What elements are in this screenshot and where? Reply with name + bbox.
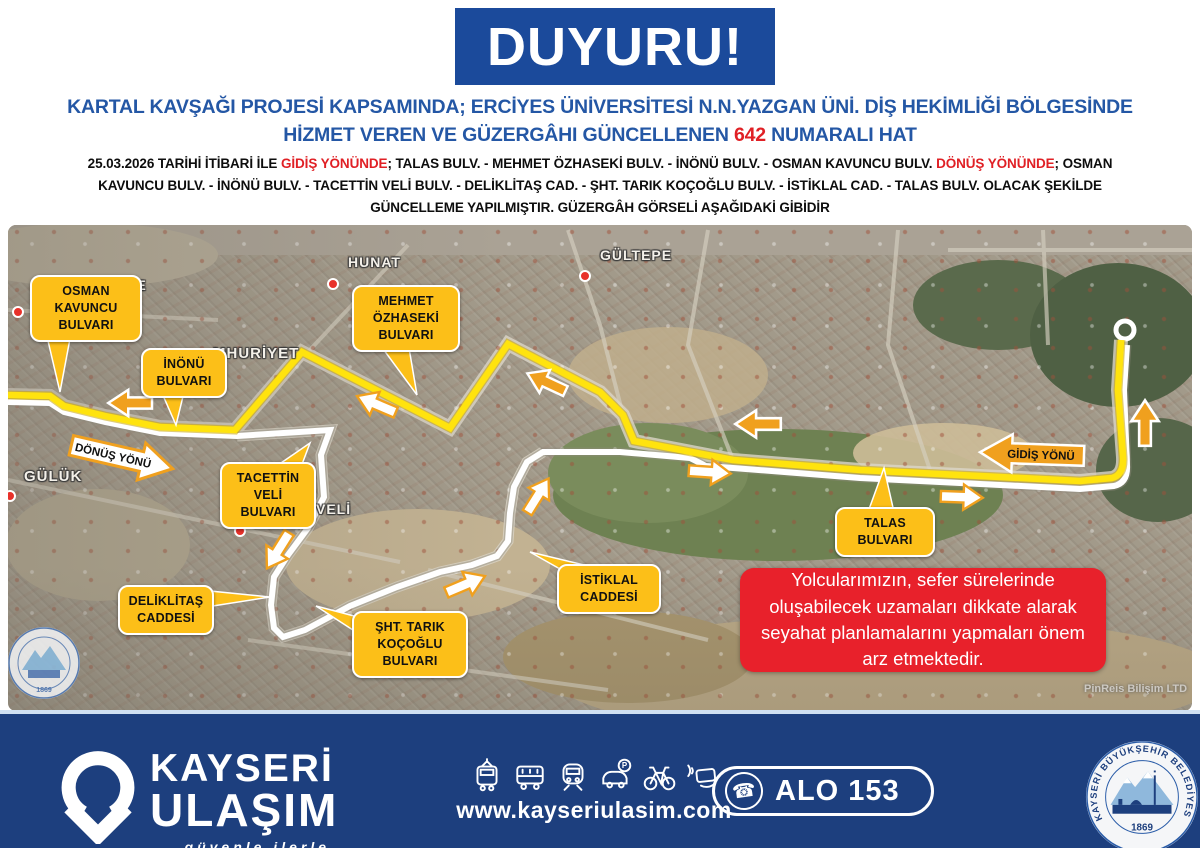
route-description: 25.03.2026 TARİHİ İTİBARİ İLE GİDİŞ YÖNÜ… bbox=[60, 153, 1140, 219]
announcement-poster: DUYURU! KARTAL KAVŞAĞI PROJESİ KAPSAMIND… bbox=[0, 0, 1200, 848]
passenger-advisory: Yolcularımızın, sefer sürelerinde oluşab… bbox=[740, 568, 1106, 672]
kayseri-ulasim-pin-logo bbox=[50, 744, 146, 844]
callout-osman-kavuncu: OSMAN KAVUNCU BULVARI bbox=[30, 275, 142, 342]
callout-inonu: İNÖNÜ BULVARI bbox=[141, 348, 227, 398]
footer-middle: P www.kayseriulasim.com bbox=[438, 758, 750, 824]
headline: KARTAL KAVŞAĞI PROJESİ KAPSAMINDA; ERCİY… bbox=[0, 94, 1200, 149]
banner-title: DUYURU! bbox=[487, 16, 743, 78]
headline-text: KARTAL KAVŞAĞI PROJESİ KAPSAMINDA; ERCİY… bbox=[65, 94, 1135, 149]
bus-icon bbox=[512, 758, 548, 792]
direction-outbound-text: GİDİŞ YÖNÜNDE bbox=[281, 156, 387, 171]
place-label: GÜLÜK bbox=[24, 468, 82, 485]
municipality-seal: KAYSERİ BÜYÜKŞEHİR BELEDİYESİ 1869 bbox=[1083, 738, 1200, 848]
brand-line1: KAYSERİ bbox=[150, 750, 330, 787]
phone-handset-icon: ☎ bbox=[723, 770, 766, 813]
svg-text:P: P bbox=[621, 761, 627, 770]
route-map: DÖNÜŞ YÖNÜ GİDİŞ YÖNÜ bbox=[8, 225, 1192, 711]
transport-icons: P bbox=[438, 758, 750, 792]
callout-deliklitas: DELİKLİTAŞ CADDESİ bbox=[118, 585, 214, 635]
callout-talas: TALAS BULVARI bbox=[835, 507, 935, 557]
call-center-badge: ☎ ALO 153 bbox=[712, 766, 934, 816]
website-url: www.kayseriulasim.com bbox=[438, 797, 750, 824]
direction-return-text: DÖNÜŞ YÖNÜNDE bbox=[936, 156, 1054, 171]
svg-text:1869: 1869 bbox=[1131, 822, 1153, 833]
route-number: 642 bbox=[734, 124, 766, 146]
car-parking-icon: P bbox=[598, 758, 634, 792]
announcement-banner: DUYURU! bbox=[455, 8, 775, 85]
brand-tagline: güvenle ilerle bbox=[150, 839, 330, 848]
svg-text:GİDİŞ YÖNÜ: GİDİŞ YÖNÜ bbox=[1007, 448, 1075, 463]
place-label: GÜLTEPE bbox=[600, 247, 672, 263]
footer: KAYSERİ ULAŞIM güvenle ilerle P bbox=[0, 710, 1200, 848]
outbound-direction-arrow: GİDİŞ YÖNÜ bbox=[979, 433, 1084, 475]
bicycle-icon bbox=[641, 758, 677, 792]
callout-istiklal: İSTİKLAL CADDESİ bbox=[557, 564, 661, 614]
callout-mehmet-ozhaseki: MEHMET ÖZHASEKİ BULVARI bbox=[352, 285, 460, 352]
route-terminal-loop bbox=[1116, 321, 1134, 339]
municipality-watermark-seal: 1869 bbox=[8, 620, 86, 706]
metro-icon bbox=[555, 758, 591, 792]
brand-line2: ULAŞIM bbox=[150, 787, 330, 833]
callout-sht-tarik-kocoglu: ŞHT. TARIK KOÇOĞLU BULVARI bbox=[352, 611, 468, 678]
svg-text:1869: 1869 bbox=[36, 687, 52, 694]
map-credit: PinReis Bilişim LTD bbox=[1084, 683, 1187, 695]
place-label: HUNAT bbox=[348, 254, 401, 270]
callout-tacettin-veli: TACETTİN VELİ BULVARI bbox=[220, 462, 316, 529]
brand-block: KAYSERİ ULAŞIM güvenle ilerle bbox=[150, 750, 330, 848]
tram-icon bbox=[469, 758, 505, 792]
call-center-number: ALO 153 bbox=[775, 775, 900, 808]
